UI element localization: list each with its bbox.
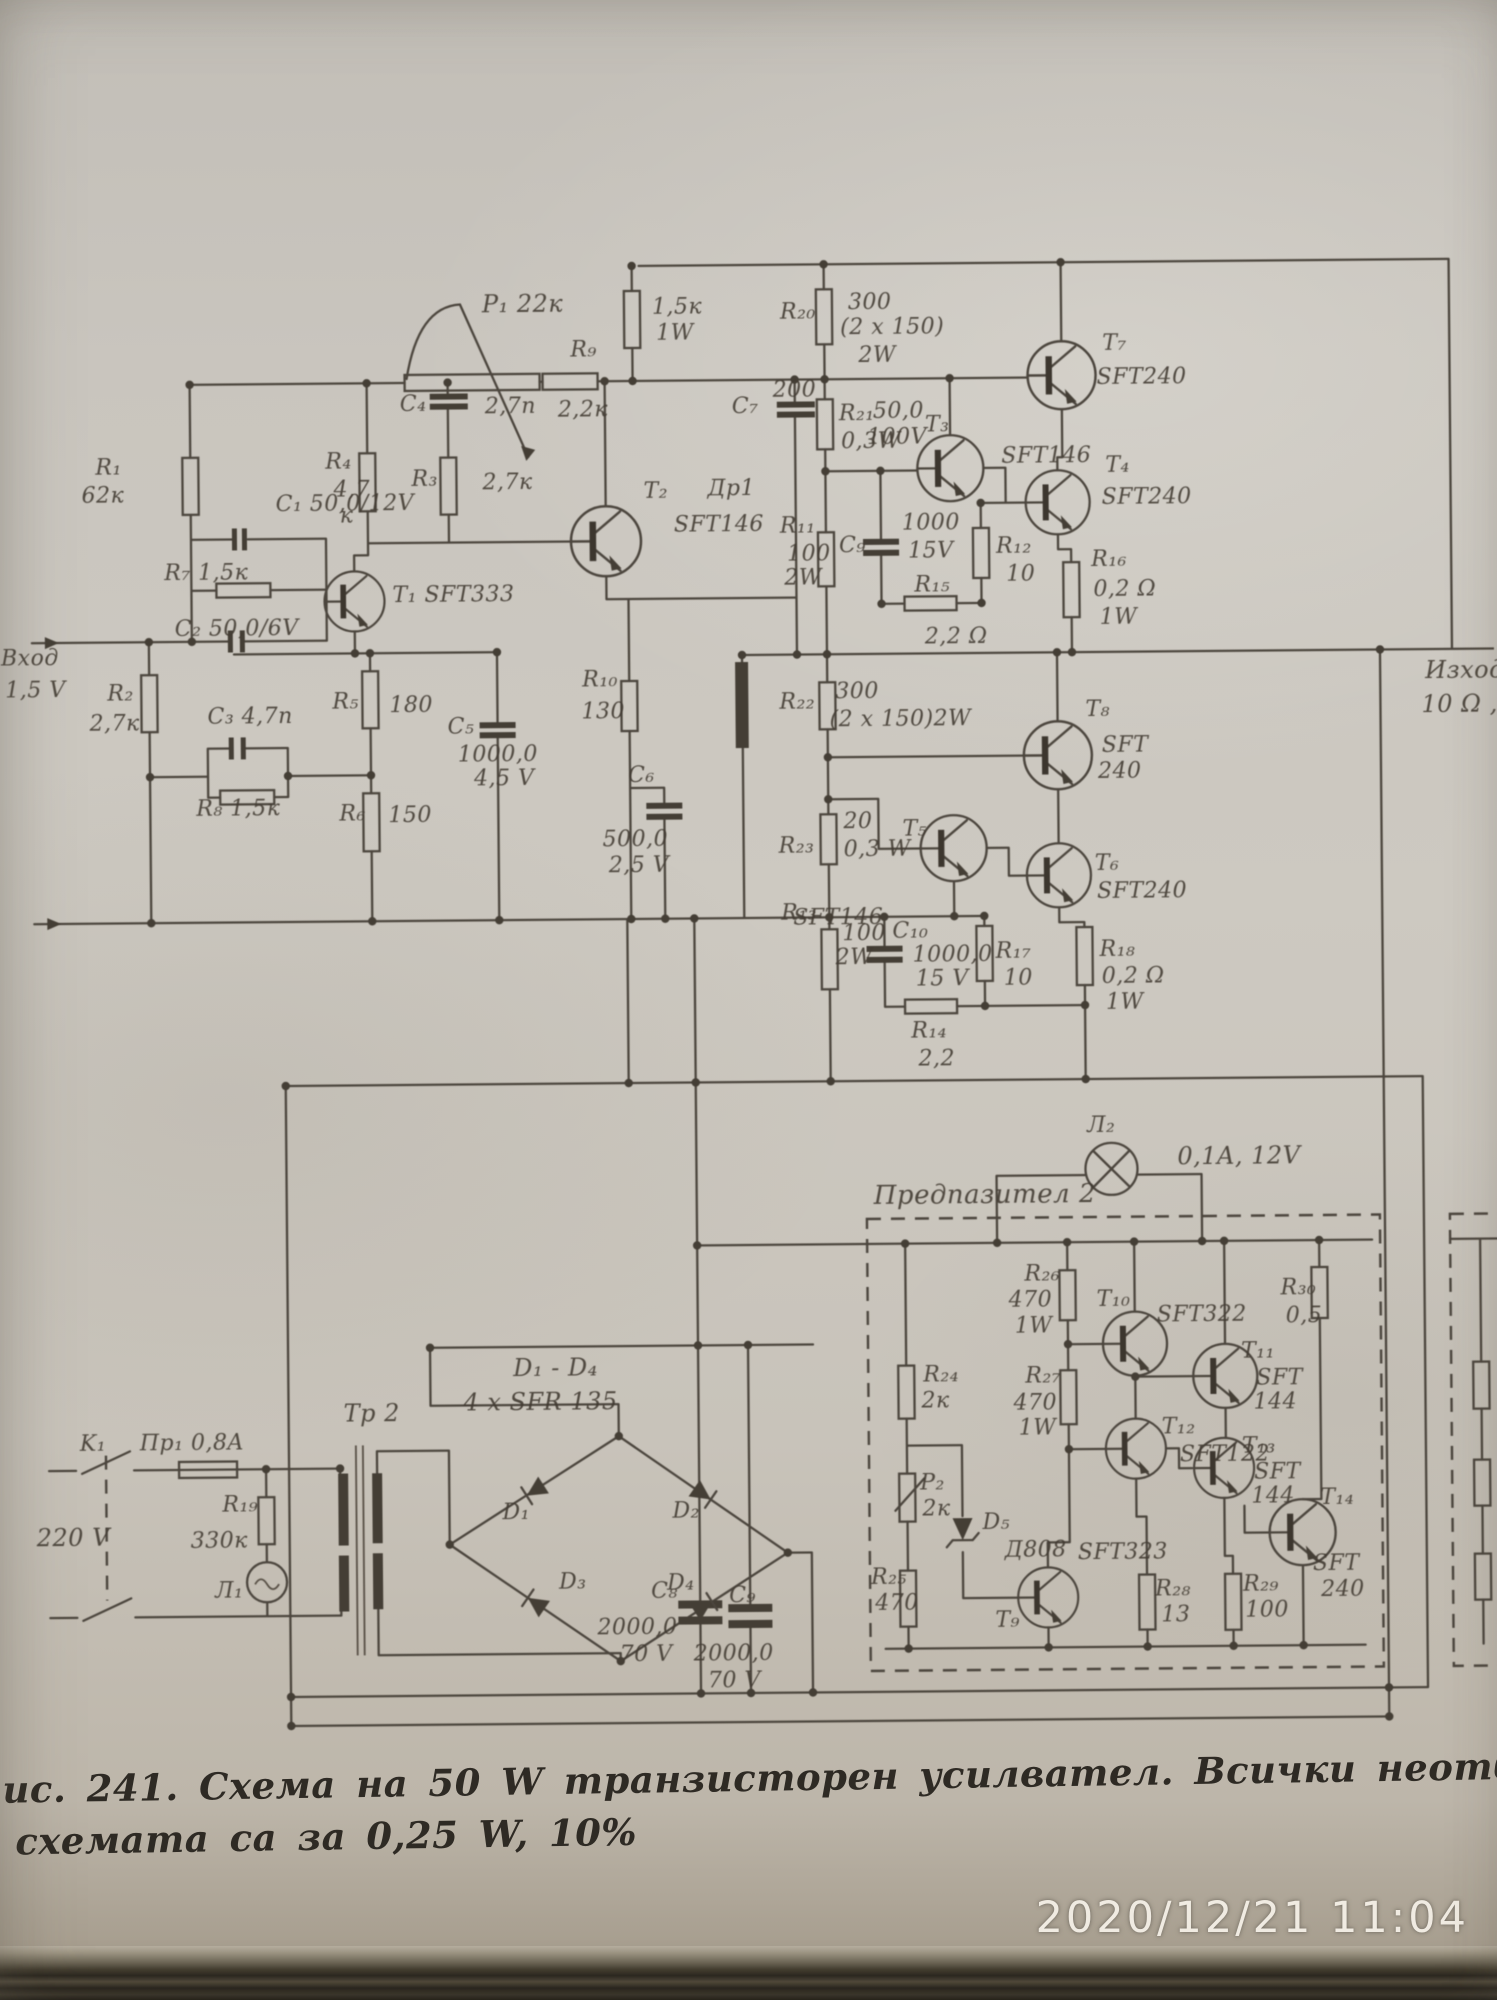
schematic-label: 300	[848, 290, 892, 315]
schematic-label: 4,7	[333, 477, 370, 502]
schematic-label: 13	[1161, 1602, 1190, 1627]
schematic-label: 20	[843, 809, 872, 834]
schematic-label: SFT	[1102, 733, 1149, 758]
transistor-symbol-T12	[1106, 1418, 1167, 1479]
schematic-label: 2,7n	[485, 394, 536, 419]
schematic-label: 70 V	[620, 1642, 673, 1667]
schematic-label: 1,5 V	[5, 678, 66, 704]
schematic-label: SFT323	[1078, 1539, 1168, 1565]
junction-dot	[1081, 1001, 1089, 1009]
schematic-label: R₂₉	[1243, 1571, 1279, 1596]
schematic-label: Тр 2	[343, 1399, 400, 1427]
schematic-label: P₁ 22к	[482, 290, 564, 319]
junction-dot	[1385, 1712, 1393, 1720]
schematic-label: 15V	[908, 538, 954, 563]
schematic-label: 2,5 V	[609, 853, 670, 879]
junction-dot	[287, 1722, 295, 1730]
schematic-label: T₃	[925, 412, 950, 437]
transistor-symbol-T1	[324, 571, 385, 632]
schematic-label: T₁₃	[1242, 1433, 1276, 1458]
junction-dot	[1376, 645, 1384, 653]
schematic-label: 1W	[1100, 605, 1138, 630]
junction-dot	[1143, 1642, 1151, 1650]
schematic-label: Предпазител 2	[874, 1179, 1097, 1211]
schematic-label: T₁₂	[1162, 1414, 1196, 1439]
schematic-label: 180	[389, 693, 433, 718]
schematic-label: R₁₁	[780, 513, 816, 538]
schematic-label: 144	[1253, 1389, 1297, 1414]
schematic-label: R₁₆	[1091, 547, 1127, 572]
junction-dot	[147, 919, 155, 927]
zener-diode	[947, 1518, 979, 1547]
junction-dot	[945, 374, 953, 382]
junction-dot	[1044, 1643, 1052, 1651]
schematic-label: Др1	[707, 476, 755, 501]
schematic-label: 2,2 Ω	[925, 624, 988, 650]
schematic-label: 50,0	[873, 398, 924, 423]
schematic-label: T₁₄	[1320, 1485, 1354, 1510]
junction-dot	[1131, 1372, 1139, 1380]
schematic-label: 470	[1013, 1390, 1057, 1415]
schematic-label: 1000,0	[458, 742, 538, 768]
schematic-label: C₅	[447, 714, 474, 739]
schematic-label: 240	[1098, 759, 1142, 784]
schematic-label: 500,0	[602, 827, 668, 853]
schematic-label: 10 Ω ,	[1421, 689, 1497, 718]
schematic-label: 1W	[1015, 1313, 1053, 1338]
junction-dot	[809, 1688, 817, 1696]
schematic-label: SFT	[1254, 1459, 1301, 1484]
schematic-label: (2 x 150)	[840, 314, 944, 340]
schematic-label: T₉	[995, 1608, 1020, 1633]
schematic-label: SFT	[1313, 1551, 1360, 1576]
schematic-label: 15 V	[916, 966, 969, 991]
schematic-label: R₂	[107, 681, 134, 706]
schematic-label: R₁₇	[995, 939, 1031, 964]
junction-dot	[693, 1241, 701, 1249]
schematic-label: 0,5	[1286, 1303, 1323, 1328]
schematic-label: R₂₇	[1025, 1363, 1061, 1388]
schematic-label: C₉	[729, 1583, 756, 1608]
schematic-label: 2W	[784, 565, 822, 590]
schematic-label: 130	[581, 699, 625, 724]
schematic-label: 470	[875, 1591, 919, 1616]
junction-dot	[446, 1540, 454, 1548]
junction-dot	[336, 1464, 344, 1472]
schematic-label: 300	[835, 679, 879, 704]
junction-dots	[141, 255, 1393, 1731]
schematic-label: C₇	[732, 394, 759, 419]
junction-dot	[977, 599, 985, 607]
junction-dot	[366, 649, 374, 657]
schematic-label: 2к	[921, 1388, 949, 1413]
junction-dot	[493, 648, 501, 656]
junction-dot	[1220, 1237, 1228, 1245]
junction-dot	[495, 916, 503, 924]
schematic-label: D₃	[559, 1569, 587, 1594]
transistor-symbol-T7	[1027, 341, 1096, 410]
schematic-label: SFT146	[674, 512, 764, 538]
schematic-label: R₁₈	[1099, 937, 1135, 962]
schematic-label: D₂	[672, 1498, 700, 1523]
schematic-label: T₇	[1102, 331, 1127, 356]
junction-dot	[876, 467, 884, 475]
schematic-label: T₁ SFT333	[392, 582, 514, 608]
junction-dot	[1229, 1642, 1237, 1650]
schematic-label: R₁₃	[781, 900, 817, 925]
junction-dot	[262, 1465, 270, 1473]
junction-dot	[351, 649, 359, 657]
schematic-label: 144	[1251, 1483, 1295, 1508]
schematic-label: R₁₂	[996, 534, 1032, 559]
schematic-label: SFT	[1256, 1365, 1303, 1390]
junction-dot	[826, 1077, 834, 1085]
junction-dot	[981, 1002, 989, 1010]
schematic-label: 240	[1321, 1577, 1365, 1602]
lamp-L1	[247, 1562, 287, 1602]
schematic-label: 2,2	[918, 1046, 955, 1071]
schematic-label: D₅	[982, 1510, 1010, 1535]
schematic-label: C₂ 50,0/6V	[175, 616, 299, 642]
junction-dot	[145, 638, 153, 646]
schematic-label: SFT322	[1157, 1302, 1247, 1328]
schematic-label: T₈	[1085, 697, 1110, 722]
schematic-label: D₁	[502, 1500, 530, 1525]
junction-dot	[1068, 648, 1076, 656]
schematic-label: C₄	[400, 392, 427, 417]
junction-dot	[819, 260, 827, 268]
junction-dot	[697, 1689, 705, 1697]
transistor-symbol-T2	[571, 506, 642, 577]
junction-dot	[694, 1341, 702, 1349]
schematic-label: R₆	[339, 801, 366, 826]
schematic-label: R₁₉	[222, 1492, 258, 1517]
schematic-label: 1W	[656, 320, 694, 345]
schematic-label: 470	[1009, 1287, 1053, 1312]
schematic-label: SFT240	[1102, 484, 1192, 510]
schematic-label: 100	[1245, 1597, 1289, 1622]
schematic-label: R₉	[570, 337, 597, 362]
transistor-symbol-T4	[1025, 470, 1090, 535]
schematic-label: Д808	[1005, 1537, 1067, 1563]
schematic-label: C₆	[628, 763, 655, 788]
junction-dot	[628, 377, 636, 385]
schematic-label: 330к	[191, 1528, 248, 1553]
junction-dot	[993, 1239, 1001, 1247]
schematic-label: R₄	[325, 449, 352, 474]
junction-dot	[904, 1644, 912, 1652]
schematic-label: R₈ 1,5к	[196, 796, 280, 822]
junction-dot	[690, 914, 698, 922]
junction-dot	[1053, 648, 1061, 656]
junction-dot	[738, 651, 746, 659]
schematic-drawing	[0, 0, 1497, 2000]
schematic-label: T₄	[1105, 453, 1130, 478]
schematic-label: R₂₁	[839, 401, 875, 426]
junction-dot	[784, 1548, 792, 1556]
schematic-label: T₅	[902, 816, 927, 841]
junction-dot	[1056, 258, 1064, 266]
junction-dot	[426, 1344, 434, 1352]
schematic-label: R₁₅	[914, 572, 950, 597]
schematic-label: 4 x SFR 135	[463, 1387, 617, 1416]
schematic-label: R₅	[332, 689, 359, 714]
junction-dot	[793, 650, 801, 658]
schematic-label: (2 x 150)2W	[829, 706, 971, 732]
junction-dot	[615, 1432, 623, 1440]
junction-dot	[823, 650, 831, 658]
schematic-label: C₉	[839, 533, 866, 558]
schematic-label: 0,1A, 12V	[1177, 1141, 1300, 1170]
schematic-label: 2000,0	[597, 1615, 677, 1641]
schematic-label: 0,2 Ω	[1093, 576, 1156, 602]
junction-dot	[367, 771, 375, 779]
schematic-label: 4,5 V	[474, 766, 535, 792]
junction-dot	[691, 1078, 699, 1086]
schematic-label: Л₁	[215, 1578, 243, 1603]
junction-dot	[185, 381, 193, 389]
junction-dot	[284, 772, 292, 780]
schematic-label: 220 V	[37, 1524, 111, 1553]
transistor-symbol-T5	[920, 815, 987, 882]
junction-dot	[600, 377, 608, 385]
junction-dot	[368, 917, 376, 925]
schematic-label: R₂₀	[780, 299, 816, 324]
book-page-edge	[0, 1946, 1497, 2000]
schematic-label: SFT240	[1096, 364, 1186, 390]
schematic-label: R₁₄	[911, 1018, 947, 1043]
schematic-label: T₂	[643, 479, 668, 504]
schematic-label: 0,2 Ω	[1102, 963, 1165, 989]
junction-dot	[824, 795, 832, 803]
transistor-symbol-T9	[1018, 1567, 1079, 1628]
schematic-label: C₈	[651, 1579, 678, 1604]
junction-dot	[950, 912, 958, 920]
junction-dot	[1065, 1445, 1073, 1453]
schematic-label: Л₂	[1087, 1113, 1115, 1138]
schematic-label: Изход	[1425, 655, 1497, 684]
schematic-label: Вход	[1, 646, 59, 672]
book-page-photo: P₁ 22кR₁62кC₁ 50,0/12VR₄4,7кC₄2,7nR₃2,7к…	[0, 0, 1497, 2000]
schematic-label: P₂	[920, 1470, 945, 1495]
schematic-label: C₃ 4,7n	[207, 704, 293, 730]
schematic-label: R₂₄	[923, 1362, 959, 1387]
junction-dot	[661, 914, 669, 922]
bridge-diodes	[521, 1475, 717, 1622]
schematic-label: SFT240	[1097, 878, 1187, 904]
junction-dot	[146, 773, 154, 781]
junction-dot	[624, 1079, 632, 1087]
schematic-label: R₂₆	[1024, 1261, 1060, 1286]
schematic-label: R₂₃	[779, 833, 815, 858]
schematic-label: R₂₅	[871, 1565, 907, 1590]
schematic-label: 0,3W	[841, 429, 901, 455]
junction-dot	[627, 262, 635, 270]
circuit-schematic: P₁ 22кR₁62кC₁ 50,0/12VR₄4,7кC₄2,7nR₃2,7к…	[0, 0, 1497, 2000]
transistor-symbol-T8	[1024, 721, 1093, 790]
schematic-label: K₁	[80, 1432, 106, 1457]
junction-dot	[627, 915, 635, 923]
junction-dot	[1385, 1683, 1393, 1691]
schematic-label: 1000	[902, 510, 960, 536]
schematic-label: R₂₂	[779, 689, 815, 714]
schematic-label: 2,7к	[482, 470, 532, 495]
junction-dot	[287, 1693, 295, 1701]
junction-dot	[362, 379, 370, 387]
schematic-label: 100	[787, 541, 831, 566]
junction-dot	[281, 1082, 289, 1090]
schematic-label: 200	[773, 377, 817, 402]
schematic-label: 1000,0	[913, 942, 993, 968]
schematic-label: R₁₀	[582, 667, 618, 692]
junction-dot	[1063, 1238, 1071, 1246]
junction-dot	[1299, 1641, 1307, 1649]
schematic-label: 1,5к	[652, 294, 702, 319]
schematic-label: 10	[1004, 966, 1033, 991]
transistor-symbol-T6	[1027, 843, 1092, 908]
junction-dot	[1198, 1237, 1206, 1245]
schematic-label: 0,3 W	[844, 837, 911, 863]
schematic-label: 2к	[922, 1496, 950, 1521]
schematic-label: SFT146	[1001, 443, 1091, 469]
junction-dot	[1130, 1237, 1138, 1245]
schematic-label: R₃	[411, 467, 438, 492]
schematic-label: R₂₈	[1155, 1576, 1191, 1601]
schematic-label: 62к	[81, 483, 124, 508]
schematic-label: T₁₁	[1241, 1338, 1275, 1363]
schematic-label: 2W	[858, 343, 896, 368]
schematic-label: D₁ - D₄	[513, 1353, 598, 1382]
schematic-label: 1W	[1019, 1415, 1057, 1440]
junction-dot	[821, 467, 829, 475]
schematic-label: 2,2к	[558, 397, 608, 422]
junction-dot	[820, 375, 828, 383]
junction-dot	[744, 1341, 752, 1349]
schematic-label: 2,7к	[89, 711, 139, 736]
schematic-label: T₁₀	[1097, 1287, 1131, 1312]
schematic-label: 1W	[1106, 990, 1144, 1015]
schematic-label: к	[340, 503, 354, 528]
schematic-label: 2W	[836, 945, 874, 970]
junction-dot	[980, 912, 988, 920]
schematic-label: R₇ 1,5к	[164, 560, 248, 586]
schematic-label: R₃₀	[1280, 1275, 1316, 1300]
schematic-label: 10	[1006, 561, 1035, 586]
junction-dot	[824, 753, 832, 761]
junction-dot	[976, 499, 984, 507]
junction-dot	[1064, 1340, 1072, 1348]
schematic-label: 2000,0	[694, 1641, 774, 1667]
junction-dot	[1081, 1075, 1089, 1083]
junction-dot	[877, 600, 885, 608]
schematic-label: C₁₀	[892, 918, 928, 943]
junction-dot	[1315, 1236, 1323, 1244]
schematic-label: Пр₁ 0,8A	[140, 1430, 244, 1456]
schematic-label: T₆	[1095, 851, 1120, 876]
schematic-label: 150	[388, 803, 432, 828]
camera-timestamp: 2020/12/21 11:04	[1036, 1893, 1469, 1943]
junction-dot	[443, 378, 451, 386]
schematic-label: R₁	[95, 455, 122, 480]
junction-dot	[901, 1239, 909, 1247]
schematic-label: 70 V	[708, 1668, 761, 1693]
schematic-label: 100	[842, 921, 886, 946]
